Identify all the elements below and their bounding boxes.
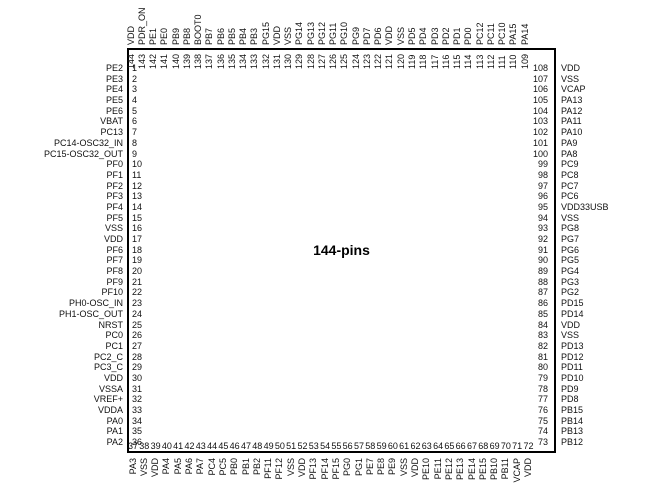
pin-number: 45 <box>218 442 228 451</box>
pin-label: PE4 <box>0 85 123 94</box>
pin-number: 121 <box>385 54 394 69</box>
pin-number: 103 <box>518 117 548 126</box>
pin-number: 38 <box>139 442 149 451</box>
pin-label: PG3 <box>561 278 579 287</box>
pin-label: PF12 <box>275 458 284 480</box>
pin-label: PB1 <box>242 458 251 475</box>
pin-label: PC1 <box>0 342 123 351</box>
pin-number: 105 <box>518 96 548 105</box>
pin-label: PC12 <box>476 22 485 45</box>
pin-label: PF0 <box>0 160 123 169</box>
pin-label: PD1 <box>453 27 462 45</box>
pin-label: PF9 <box>0 278 123 287</box>
pin-number: 61 <box>399 442 409 451</box>
pin-number: 126 <box>329 54 338 69</box>
pin-label: PE9 <box>388 458 397 475</box>
pin-number: 48 <box>252 442 262 451</box>
pin-number: 117 <box>431 55 440 69</box>
pin-label: VDDA <box>0 406 123 415</box>
pin-number: 124 <box>352 54 361 69</box>
pin-number: 64 <box>433 442 443 451</box>
pin-number: 85 <box>518 310 548 319</box>
pin-number: 31 <box>132 385 142 394</box>
pin-label: PE2 <box>0 64 123 73</box>
pin-number: 40 <box>162 442 172 451</box>
pin-number: 21 <box>132 278 142 287</box>
pin-label: PB15 <box>561 406 583 415</box>
pin-label: VDD <box>561 321 580 330</box>
pin-number: 32 <box>132 395 142 404</box>
pin-label: VDD <box>151 458 160 477</box>
pin-number: 131 <box>273 54 282 69</box>
pin-label: PG12 <box>318 22 327 45</box>
pin-number: 57 <box>354 442 364 451</box>
pin-number: 5 <box>132 107 137 116</box>
pin-number: 136 <box>217 54 226 69</box>
pin-label: PF10 <box>0 288 123 297</box>
pin-number: 84 <box>518 321 548 330</box>
pin-number: 128 <box>307 54 316 69</box>
pin-number: 129 <box>295 54 304 69</box>
pin-label: PC6 <box>561 192 579 201</box>
pin-label: VDD <box>298 458 307 477</box>
pin-number: 94 <box>518 214 548 223</box>
pin-label: PD0 <box>464 27 473 45</box>
pin-number: 37 <box>128 442 138 451</box>
pin-label: PE15 <box>479 458 488 480</box>
pin-number: 25 <box>132 321 142 330</box>
pin-label: PB8 <box>183 28 192 45</box>
pin-number: 52 <box>297 442 307 451</box>
pin-number: 118 <box>419 55 428 69</box>
pin-label: PA8 <box>561 150 577 159</box>
pin-number: 30 <box>132 374 142 383</box>
pin-label: PA0 <box>0 417 123 426</box>
pin-label: PD13 <box>561 342 584 351</box>
pin-number: 77 <box>518 395 548 404</box>
pin-label: PF8 <box>0 267 123 276</box>
pin-number: 46 <box>230 442 240 451</box>
chip-title: 144-pins <box>129 243 554 257</box>
pin-number: 65 <box>444 442 454 451</box>
pin-label: PF15 <box>332 458 341 480</box>
pin-number: 107 <box>518 75 548 84</box>
pin-number: 47 <box>241 442 251 451</box>
pin-label: PB10 <box>490 458 499 480</box>
pin-label: PA2 <box>0 438 123 447</box>
pin-label: PE12 <box>445 458 454 480</box>
pin-number: 115 <box>453 55 462 69</box>
pin-label: PC4 <box>208 458 217 476</box>
pin-number: 134 <box>239 54 248 69</box>
pin-label: VDD33USB <box>561 203 609 212</box>
pin-label: PF13 <box>309 458 318 480</box>
pin-label: PB7 <box>205 28 214 45</box>
pin-label: VSS <box>400 458 409 476</box>
pin-number: 106 <box>518 85 548 94</box>
pin-label: VDD <box>127 26 136 45</box>
pin-number: 70 <box>501 442 511 451</box>
pin-label: PG0 <box>343 458 352 476</box>
pin-label: VDD <box>385 26 394 45</box>
pin-number: 93 <box>518 224 548 233</box>
pin-label: VCAP <box>513 458 522 483</box>
pin-label: PG9 <box>352 27 361 45</box>
pin-number: 80 <box>518 363 548 372</box>
pin-label: PA5 <box>174 458 183 474</box>
pin-label: PF6 <box>0 246 123 255</box>
pin-number: 59 <box>377 442 387 451</box>
pin-label: PC5 <box>219 458 228 476</box>
pin-label: VSS <box>287 458 296 476</box>
pin-number: 12 <box>132 182 142 191</box>
pin-number: 96 <box>518 192 548 201</box>
pin-number: 89 <box>518 267 548 276</box>
chip-body: 144-pins <box>127 48 556 453</box>
pin-number: 33 <box>132 406 142 415</box>
pin-label: PC10 <box>498 22 507 45</box>
pin-number: 24 <box>132 310 142 319</box>
pin-number: 3 <box>132 85 137 94</box>
pin-label: PF2 <box>0 182 123 191</box>
pin-number: 28 <box>132 353 142 362</box>
pin-number: 13 <box>132 192 142 201</box>
pin-number: 88 <box>518 278 548 287</box>
pin-label: PD4 <box>419 27 428 45</box>
pin-number: 82 <box>518 342 548 351</box>
pin-number: 68 <box>478 442 488 451</box>
pin-label: PC15-OSC32_OUT <box>0 150 123 159</box>
pin-label: PC0 <box>0 331 123 340</box>
pin-label: PA13 <box>561 96 582 105</box>
pin-number: 16 <box>132 224 142 233</box>
pin-number: 78 <box>518 385 548 394</box>
pin-label: PF11 <box>264 458 273 479</box>
pin-label: PD2 <box>442 27 451 45</box>
pin-number: 53 <box>309 442 319 451</box>
pin-label: PG6 <box>561 246 579 255</box>
pin-label: PD6 <box>374 27 383 45</box>
pin-number: 69 <box>490 442 500 451</box>
pin-number: 18 <box>132 246 142 255</box>
pin-label: VSS <box>0 224 123 233</box>
pin-number: 42 <box>184 442 194 451</box>
pin-number: 91 <box>518 246 548 255</box>
pin-number: 66 <box>456 442 466 451</box>
pin-label: VDD <box>411 458 420 477</box>
pin-number: 19 <box>132 256 142 265</box>
pin-number: 81 <box>518 353 548 362</box>
pin-label: PE7 <box>366 458 375 475</box>
pin-label: VSS <box>284 27 293 45</box>
pin-label: PD15 <box>561 299 584 308</box>
pin-number: 102 <box>518 128 548 137</box>
pin-number: 63 <box>422 442 432 451</box>
pin-number: 111 <box>498 55 507 69</box>
pin-number: 90 <box>518 256 548 265</box>
pin-number: 110 <box>509 55 518 69</box>
pin-label: PH0-OSC_IN <box>0 299 123 308</box>
pin-label: PD11 <box>561 363 583 372</box>
pin-label: BOOT0 <box>194 14 203 45</box>
pin-label: PC9 <box>561 160 579 169</box>
pin-label: PE3 <box>0 75 123 84</box>
pin-number: 113 <box>476 55 485 69</box>
pin-label: PF7 <box>0 256 123 265</box>
pin-label: PG8 <box>561 224 579 233</box>
pin-label: PG15 <box>262 22 271 45</box>
pin-label: PG2 <box>561 288 579 297</box>
pin-number: 14 <box>132 203 142 212</box>
pin-label: PDR_ON <box>138 7 147 45</box>
pin-label: PE6 <box>0 107 123 116</box>
pin-number: 67 <box>467 442 477 451</box>
pin-label: VSS <box>397 27 406 45</box>
pin-number: 54 <box>320 442 330 451</box>
pin-number: 50 <box>275 442 285 451</box>
pin-number: 58 <box>365 442 375 451</box>
pin-number: 133 <box>250 54 259 69</box>
pin-label: PE10 <box>422 458 431 480</box>
pin-label: PD5 <box>408 27 417 45</box>
pin-label: PA6 <box>185 458 194 474</box>
pin-number: 109 <box>521 54 530 69</box>
pin-number: 137 <box>205 54 214 69</box>
pin-number: 29 <box>132 363 142 372</box>
pin-label: PB5 <box>228 28 237 45</box>
pin-number: 87 <box>518 288 548 297</box>
pin-number: 99 <box>518 160 548 169</box>
pin-number: 79 <box>518 374 548 383</box>
pin-label: VSSA <box>0 385 123 394</box>
pin-number: 95 <box>518 203 548 212</box>
pin-number: 123 <box>363 54 372 69</box>
pin-label: PE11 <box>434 458 443 479</box>
pin-number: 72 <box>523 442 533 451</box>
pin-number: 74 <box>518 427 548 436</box>
pin-number: 22 <box>132 288 142 297</box>
pin-label: VDD <box>524 458 533 477</box>
pin-label: PH1-OSC_OUT <box>0 310 123 319</box>
pin-number: 6 <box>132 117 137 126</box>
pin-label: PB9 <box>172 28 181 45</box>
pin-label: PC7 <box>561 182 579 191</box>
pin-label: PA1 <box>0 427 123 436</box>
pin-number: 7 <box>132 128 137 137</box>
pin-label: PC3_C <box>0 363 123 372</box>
pin-number: 104 <box>518 107 548 116</box>
pin-number: 144 <box>127 54 136 69</box>
pin-label: PB4 <box>239 28 248 45</box>
pin-label: PG5 <box>561 256 579 265</box>
pin-number: 86 <box>518 299 548 308</box>
pin-number: 141 <box>160 54 169 69</box>
pin-number: 10 <box>132 160 142 169</box>
pin-number: 23 <box>132 299 142 308</box>
pin-label: PD3 <box>431 27 440 45</box>
pin-number: 55 <box>331 442 341 451</box>
pin-label: PB2 <box>253 458 262 475</box>
pin-label: PA7 <box>196 458 205 474</box>
pin-number: 92 <box>518 235 548 244</box>
pin-label: VSS <box>561 214 579 223</box>
pin-number: 2 <box>132 75 137 84</box>
pin-label: PA4 <box>162 458 171 474</box>
pin-label: PA14 <box>521 24 530 45</box>
pin-number: 44 <box>207 442 217 451</box>
pin-number: 34 <box>132 417 142 426</box>
pin-number: 97 <box>518 182 548 191</box>
pin-label: PG10 <box>340 22 349 45</box>
pin-number: 127 <box>318 54 327 69</box>
pin-label: PG1 <box>355 458 364 476</box>
pin-label: NRST <box>0 321 123 330</box>
pin-number: 11 <box>132 171 141 180</box>
pin-number: 116 <box>442 55 451 69</box>
pin-label: PB11 <box>501 458 510 479</box>
pin-number: 20 <box>132 267 142 276</box>
pin-label: PD8 <box>561 395 579 404</box>
pin-number: 135 <box>228 54 237 69</box>
pin-number: 112 <box>487 55 496 69</box>
pin-label: PE8 <box>377 458 386 475</box>
pin-number: 138 <box>194 54 203 69</box>
pin-number: 139 <box>183 54 192 69</box>
pin-number: 114 <box>464 55 473 69</box>
pin-number: 98 <box>518 171 548 180</box>
pin-label: VCAP <box>561 85 586 94</box>
pin-label: VDD <box>0 235 123 244</box>
pin-label: VSS <box>561 75 579 84</box>
pin-label: PA12 <box>561 107 582 116</box>
pin-number: 120 <box>397 54 406 69</box>
pin-label: PD10 <box>561 374 584 383</box>
pin-number: 130 <box>284 54 293 69</box>
pin-label: PF1 <box>0 171 123 180</box>
pin-label: PA10 <box>561 128 582 137</box>
pin-label: PG7 <box>561 235 579 244</box>
pinout-diagram: 144-pins PE21PE32PE43PE54PE65VBAT6PC137P… <box>0 0 666 490</box>
pin-number: 15 <box>132 214 142 223</box>
pin-number: 122 <box>374 54 383 69</box>
pin-number: 83 <box>518 331 548 340</box>
pin-number: 143 <box>138 54 147 69</box>
pin-label: PA9 <box>561 139 577 148</box>
pin-label: PC8 <box>561 171 579 180</box>
pin-label: PE5 <box>0 96 123 105</box>
pin-label: VBAT <box>0 117 123 126</box>
pin-label: PA11 <box>561 117 582 126</box>
pin-label: PF4 <box>0 203 123 212</box>
pin-label: PF3 <box>0 192 123 201</box>
pin-label: PC14-OSC32_IN <box>0 139 123 148</box>
pin-label: VDD <box>0 374 123 383</box>
pin-label: PF14 <box>321 458 330 480</box>
pin-label: PF5 <box>0 214 123 223</box>
pin-number: 101 <box>518 139 548 148</box>
pin-label: PB13 <box>561 427 583 436</box>
pin-number: 35 <box>132 427 142 436</box>
pin-label: PC11 <box>487 23 496 45</box>
pin-label: PB6 <box>217 28 226 45</box>
pin-number: 41 <box>173 442 183 451</box>
pin-label: PG11 <box>329 23 338 45</box>
pin-number: 125 <box>340 54 349 69</box>
pin-number: 142 <box>149 54 158 69</box>
pin-number: 4 <box>132 96 137 105</box>
pin-number: 75 <box>518 417 548 426</box>
pin-label: PB12 <box>561 438 583 447</box>
pin-label: PD14 <box>561 310 584 319</box>
pin-label: PD7 <box>363 27 372 45</box>
pin-number: 9 <box>132 150 137 159</box>
pin-number: 71 <box>512 442 522 451</box>
pin-label: PE0 <box>160 28 169 45</box>
pin-number: 27 <box>132 342 142 351</box>
pin-label: PC2_C <box>0 353 123 362</box>
pin-label: PG13 <box>307 22 316 45</box>
pin-label: VSS <box>561 331 579 340</box>
pin-number: 8 <box>132 139 137 148</box>
pin-label: VDD <box>561 64 580 73</box>
pin-label: VREF+ <box>0 395 123 404</box>
pin-label: VSS <box>140 458 149 476</box>
pin-number: 26 <box>132 331 142 340</box>
pin-number: 132 <box>262 54 271 69</box>
pin-number: 51 <box>286 442 296 451</box>
pin-number: 60 <box>388 442 398 451</box>
pin-number: 56 <box>343 442 353 451</box>
pin-label: PD12 <box>561 353 584 362</box>
pin-label: PE1 <box>149 28 158 45</box>
pin-label: PB14 <box>561 417 583 426</box>
pin-label: PB0 <box>230 458 239 475</box>
pin-number: 119 <box>408 55 417 69</box>
pin-label: PB3 <box>250 28 259 45</box>
pin-label: PD9 <box>561 385 579 394</box>
pin-number: 62 <box>410 442 420 451</box>
pin-number: 39 <box>151 442 161 451</box>
pin-label: PE14 <box>468 458 477 480</box>
pin-number: 49 <box>264 442 274 451</box>
pin-number: 76 <box>518 406 548 415</box>
pin-label: PA3 <box>129 458 138 474</box>
pin-label: PC13 <box>0 128 123 137</box>
pin-number: 43 <box>196 442 206 451</box>
pin-label: PG4 <box>561 267 579 276</box>
pin-number: 140 <box>172 54 181 69</box>
pin-label: VDD <box>273 26 282 45</box>
pin-label: PE13 <box>456 458 465 480</box>
pin-label: PA15 <box>509 24 518 45</box>
pin-label: PG14 <box>295 22 304 45</box>
pin-number: 17 <box>132 235 142 244</box>
pin-number: 100 <box>518 150 548 159</box>
